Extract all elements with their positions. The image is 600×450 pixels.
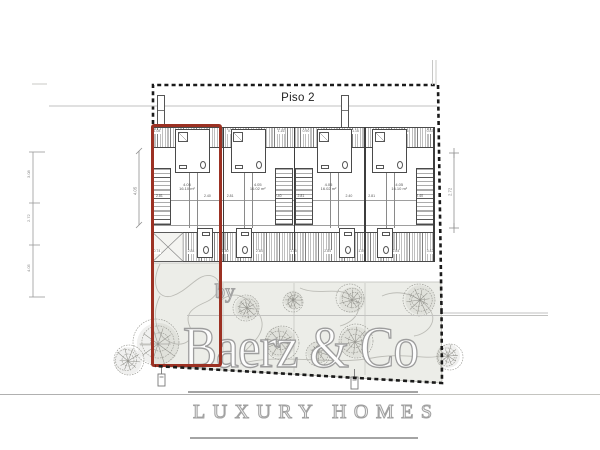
watermark-long-rule-dark — [0, 394, 420, 395]
width-label: 2.40 — [346, 195, 353, 199]
townhouse-unit: 4.05 16.02 m² 2.81 2.40 — [223, 127, 294, 262]
townhouse-unit: 4.05 16.10 m² 2.81 2.40 — [364, 127, 435, 262]
party-wall — [364, 127, 366, 262]
width-label: 2.40 — [416, 195, 423, 199]
room-area: 16.02 m² — [294, 187, 364, 191]
wc-core — [377, 228, 393, 258]
shower — [319, 132, 329, 142]
room-area: 16.10 m² — [364, 187, 434, 191]
highlight-outline — [151, 124, 222, 367]
toilet — [342, 161, 348, 169]
building-plan: Piso 2 1.083.061.160.903.061.160.903.061… — [0, 0, 600, 450]
sink — [235, 165, 243, 169]
wc-core — [236, 228, 252, 258]
duct-line — [244, 173, 245, 228]
width-label: 2.40 — [275, 195, 282, 199]
floorplan-page: 3.08 2.72 4.05 4.05 2.72 — [0, 0, 600, 450]
toilet — [397, 161, 403, 169]
bathroom-core — [372, 129, 407, 173]
toilet — [242, 246, 248, 254]
townhouse-unit: 4.05 16.02 m² 2.81 2.40 — [294, 127, 365, 262]
shower — [375, 132, 385, 142]
toilet — [345, 246, 351, 254]
duct-line — [252, 173, 253, 228]
sink — [376, 165, 384, 169]
toilet — [383, 246, 389, 254]
room-label: 4.05 16.10 m² — [364, 183, 434, 192]
party-wall — [433, 127, 435, 262]
room-label: 4.05 16.02 m² — [223, 183, 293, 192]
floor-label: Piso 2 — [270, 92, 326, 104]
bathroom-core — [231, 129, 266, 173]
sink — [382, 232, 390, 236]
duct-line — [338, 173, 339, 228]
width-label: 2.81 — [227, 195, 234, 199]
width-label: 2.81 — [298, 195, 305, 199]
width-label: 2.81 — [368, 195, 375, 199]
party-wall — [294, 127, 296, 262]
vent-shaft — [341, 95, 349, 128]
room-label: 4.05 16.02 m² — [294, 183, 364, 192]
sink — [344, 232, 352, 236]
bathroom-core — [317, 129, 352, 173]
sink — [321, 165, 329, 169]
toilet — [256, 161, 262, 169]
watermark-rule-bottom — [190, 437, 418, 439]
shower — [233, 132, 243, 142]
sink — [241, 232, 249, 236]
watermark-tagline: LUXURY HOMES — [193, 401, 440, 424]
wc-core — [339, 228, 355, 258]
room-area: 16.02 m² — [223, 187, 293, 191]
watermark-rule-top — [188, 391, 418, 393]
duct-line — [386, 173, 387, 228]
party-wall — [223, 127, 225, 262]
